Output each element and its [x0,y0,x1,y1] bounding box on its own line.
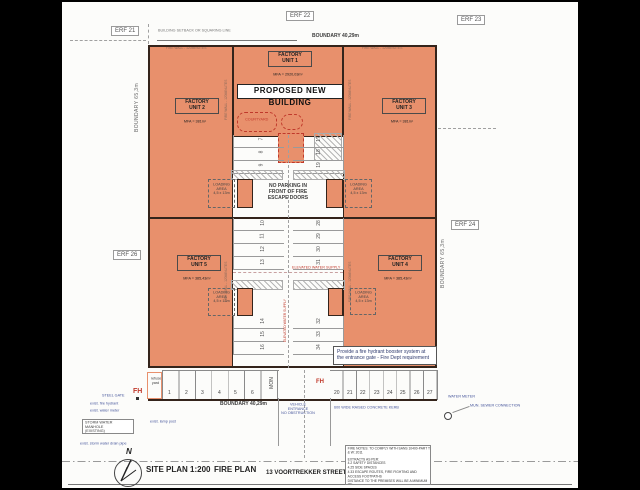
boundary-top-label: BOUNDARY 40,29m [312,34,359,40]
storm-manhole-box: STORM WATER MANHOLE (EXISTING) [82,419,134,434]
loading-area-box-3: LOADING AREA 4,5 x 13m [208,288,235,316]
vehicle-entrance-label: VEHICLE ENTRANCE NO OBSTRUCTION [279,403,316,416]
fire-wall-label-2: FIRE WALL - 120MINUTES [362,47,402,50]
sewer-leader-line [452,406,469,413]
aisle-centerline [288,135,289,368]
unit-4-label: FACTORY UNIT 4 [378,255,422,271]
no-parking-note: NO PARKING IN FRONT OF FIRE ESCAPE DOORS [266,184,310,201]
unit-3-mfa: MFA = 381m² [386,120,418,124]
loading-area-box-4: LOADING AREA 4,5 x 13m [350,288,376,315]
street-name-title: 13 VOORTREKKER STREET [266,470,346,476]
bays-left-top [233,135,284,174]
mon-bay-label: MON [269,377,275,389]
bay-number: 34 [316,344,322,350]
courtyard-blob: COURTYARD [237,112,277,132]
exist-water-meter-label: exist. water meter [90,409,119,413]
loading-dock-1 [237,179,253,208]
unit-1-label: FACTORY UNIT 1 [268,51,312,67]
loading-dock-3 [237,288,253,316]
north-letter: N [126,447,132,456]
bay-number: 28 [316,220,322,226]
bay-number: 25 [400,390,406,396]
bay-number: 16 [260,344,266,350]
bays-left-bottom [233,316,284,355]
bay-number: 8 [258,151,264,154]
erf-21-label: ERF 21 [111,26,139,36]
boundary-bottom-label: BOUNDARY 40,29m [220,402,267,408]
fire-wall-label-4: FIRE WALL - 120MINUTES [349,80,352,120]
bay-number: 24 [387,390,393,396]
water-supply-dash [233,272,343,273]
bay-number: 11 [260,233,266,238]
bay-number: 2 [185,390,188,396]
boundary-right-label: BOUNDARY 65,3m [440,222,446,288]
bay-number: 21 [347,390,353,396]
unit-5-mfa: MFA = 385,43m² [181,277,213,281]
courtyard-label: COURTYARD [245,118,268,122]
bay-number: 32 [316,318,322,324]
proposed-building-banner: PROPOSED NEW BUILDING [237,84,343,99]
loading-dock-4 [328,288,343,316]
street-edge-line [68,484,572,485]
fire-note-line: DISTANCE TO THE PREMISES WILL BE A MINIM… [348,479,431,485]
unit-3-label: FACTORY UNIT 3 [382,98,426,114]
bay-number: 3 [201,390,204,396]
plan-sheet: ERF 21 ERF 22 ERF 23 ERF 24 ERF 26 BUILD… [62,2,578,488]
bay-number: 12 [260,246,266,252]
loading-area-label-2: LOADING AREA 4,5 x 13m [350,183,367,196]
drawing-canvas: ERF 21 ERF 22 ERF 23 ERF 24 ERF 26 BUILD… [0,0,640,490]
bay-number: 7 [258,138,264,141]
bay-number: 14 [260,318,266,324]
hydrant-marker-entrance: FH [316,379,324,385]
setback-dash-left [70,40,146,41]
fire-wall-label-3: FIRE WALL - 120MINUTES [225,80,228,120]
site-plan-title: SITE PLAN 1:200 [146,465,210,474]
steel-gate-label: STEEL GATE [102,394,125,398]
sewer-connection-label: MUN. SEWER CONNECTION [470,404,520,408]
courtyard-blob-2 [281,114,303,130]
bays-left-mid [233,218,284,270]
exist-fire-hydrant-label: exist. fire hydrant [90,402,118,406]
bay-number: 27 [427,390,433,396]
storm-manhole-label: STORM WATER MANHOLE (EXISTING) [85,421,115,434]
boundary-dash-topleft [148,24,149,44]
fire-wall-label-1: FIRE WALL - 120MINUTES [166,47,206,50]
bay-number: 4 [218,390,221,396]
setback-label: BUILDING SETBACK OR SQUARING LINE [158,29,231,33]
bay-number: 1 [168,390,171,396]
bay-number: 30 [316,246,322,252]
refuse-yard-box: refuse yard [147,372,162,399]
bay-number: 15 [260,331,266,337]
erf-26-label: ERF 26 [113,250,141,260]
bay-number: 19 [316,162,322,168]
kerb-label: 600 WIDE RAISED CONCRETE KERB [334,406,399,410]
fire-notes-header: FIRE NOTES: TO COMPLY WITH SANS 10400-PA… [348,447,431,456]
unit-5-label: FACTORY UNIT 5 [177,255,221,271]
bay-number: 26 [414,390,420,396]
fire-note-line: 4.33 ESCAPE ROUTES, FIRE FIGHTING AND AC… [348,471,431,480]
hydrant-booster-note: Provide a fire hydrant booster system at… [333,346,437,365]
loading-area-label-1: LOADING AREA 4,5 x 13m [213,183,230,196]
water-meter-right-label: WATER METER [448,395,475,399]
bay-number: 6 [251,390,254,396]
storm-pipe-label: exist. storm water drain pipe [80,442,127,446]
sewer-connection-symbol [444,412,452,420]
bay-number: 31 [316,259,322,265]
unit-2-label: FACTORY UNIT 2 [175,98,219,114]
bay-number: 20 [334,390,340,396]
fire-hydrant-marker: FH [133,388,142,395]
setback-line [157,40,297,41]
erf-23-label: ERF 23 [457,15,485,25]
entrance-edge-right [330,398,331,446]
loading-dock-2 [326,179,343,208]
loading-area-label-4: LOADING AREA 4,5 x 13m [355,291,372,304]
fire-plan-title: FIRE PLAN [214,465,256,474]
erf-22-label: ERF 22 [286,11,314,21]
bay-number: 9 [258,164,264,167]
loading-area-box-2: LOADING AREA 4,5 x 13m [345,179,372,208]
loading-area-box-1: LOADING AREA 4,5 x 13m [208,179,235,208]
bay-number: 18 [316,149,322,155]
bay-number: 23 [374,390,380,396]
erf-dash-right [438,128,496,129]
unit-2-mfa: MFA = 381m² [179,120,211,124]
boundary-left-label: BOUNDARY 65,3m [134,60,140,132]
unit-4-mfa: MFA = 385,43m² [382,277,414,281]
bay-number: 10 [260,220,266,226]
hydrant-symbol [136,397,139,400]
bay-number: 17 [316,136,322,142]
erf-24-label: ERF 24 [451,220,479,230]
elevated-water-label-2: ELEVATED WATER SUPPLY [284,299,287,342]
fire-notes-box: FIRE NOTES: TO COMPLY WITH SANS 10400-PA… [345,445,431,485]
bay-number: 13 [260,259,266,265]
loading-area-label-3: LOADING AREA 4,5 x 13m [213,291,230,304]
bay-number: 22 [360,390,366,396]
bay-number: 5 [234,390,237,396]
refuse-yard-label: refuse yard [151,377,160,386]
bay-number: 33 [316,331,322,337]
bay-number: 29 [316,233,322,239]
unit-1-mfa: MFA = 2920,03m² [272,73,304,77]
boundary-bottom-line [148,399,437,401]
elevated-water-label-1: ELEVATED WATER SUPPLY [292,266,340,270]
lamp-post-label: exist. lamp post [150,420,176,424]
north-arrow-icon [114,459,140,485]
